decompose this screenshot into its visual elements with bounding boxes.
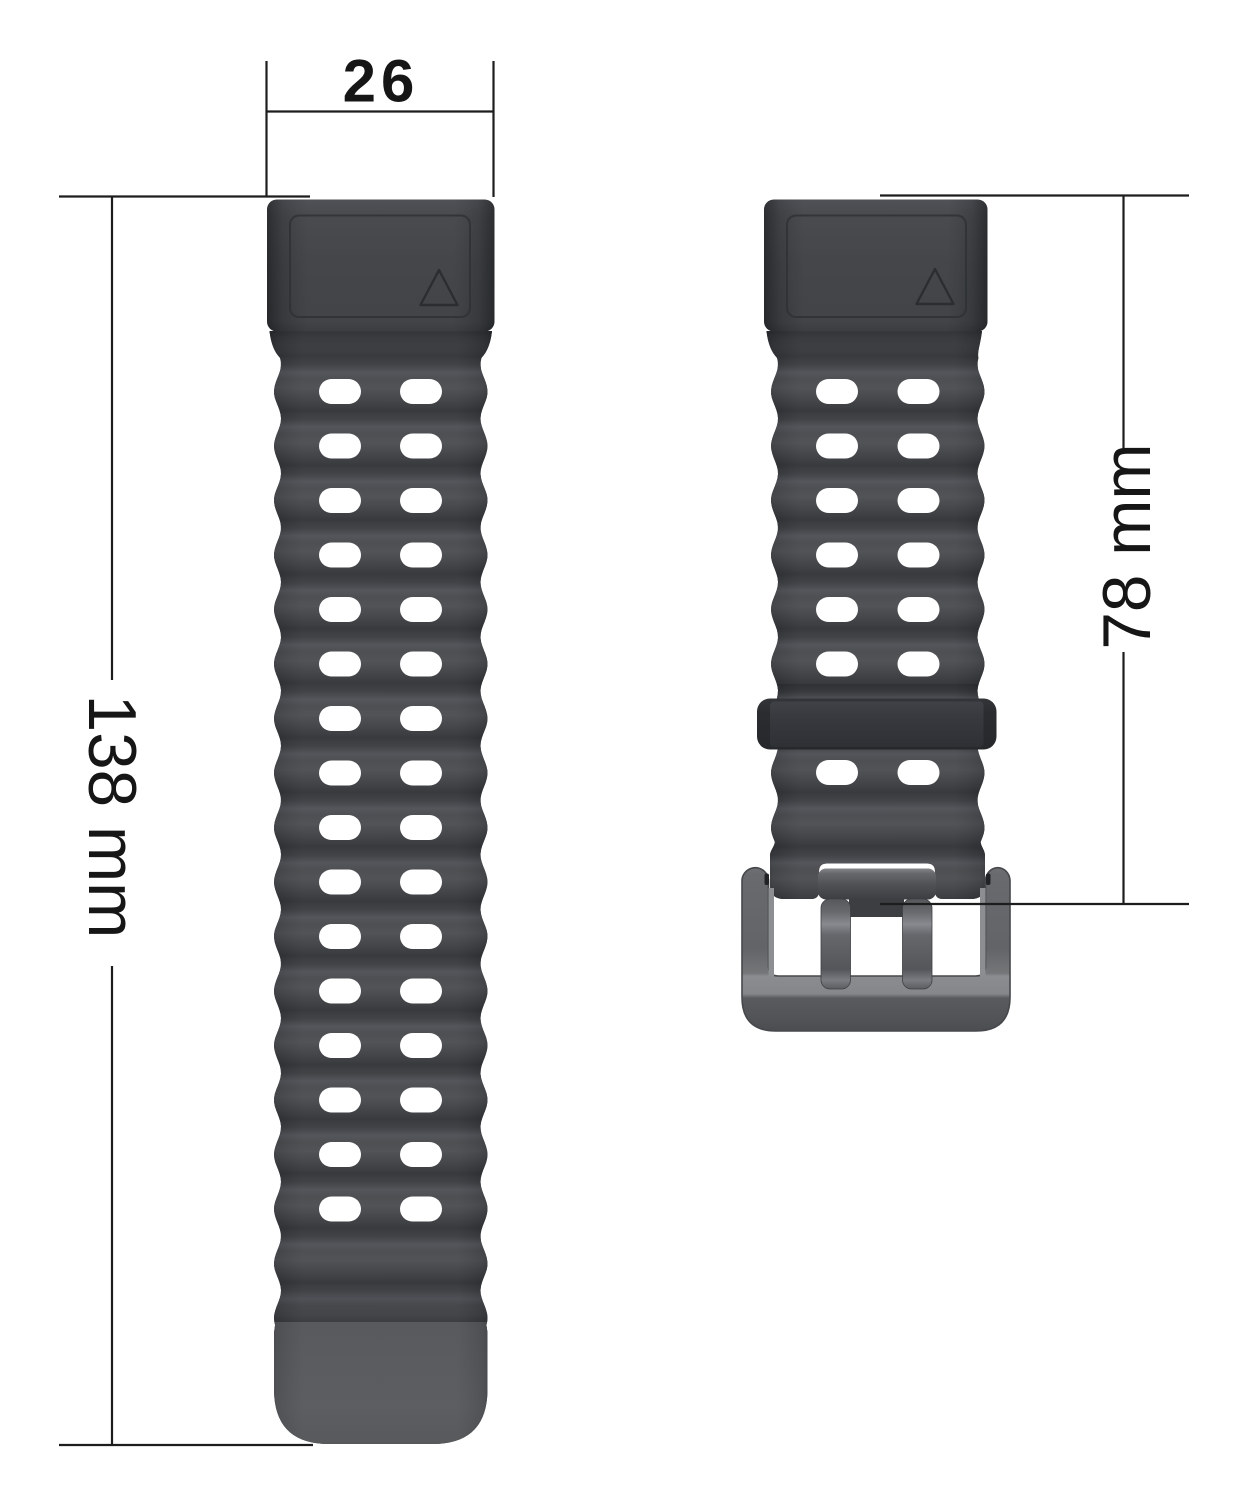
- svg-text:26: 26: [343, 48, 420, 115]
- svg-text:138 mm: 138 mm: [74, 695, 149, 939]
- svg-text:78 mm: 78 mm: [1090, 443, 1165, 649]
